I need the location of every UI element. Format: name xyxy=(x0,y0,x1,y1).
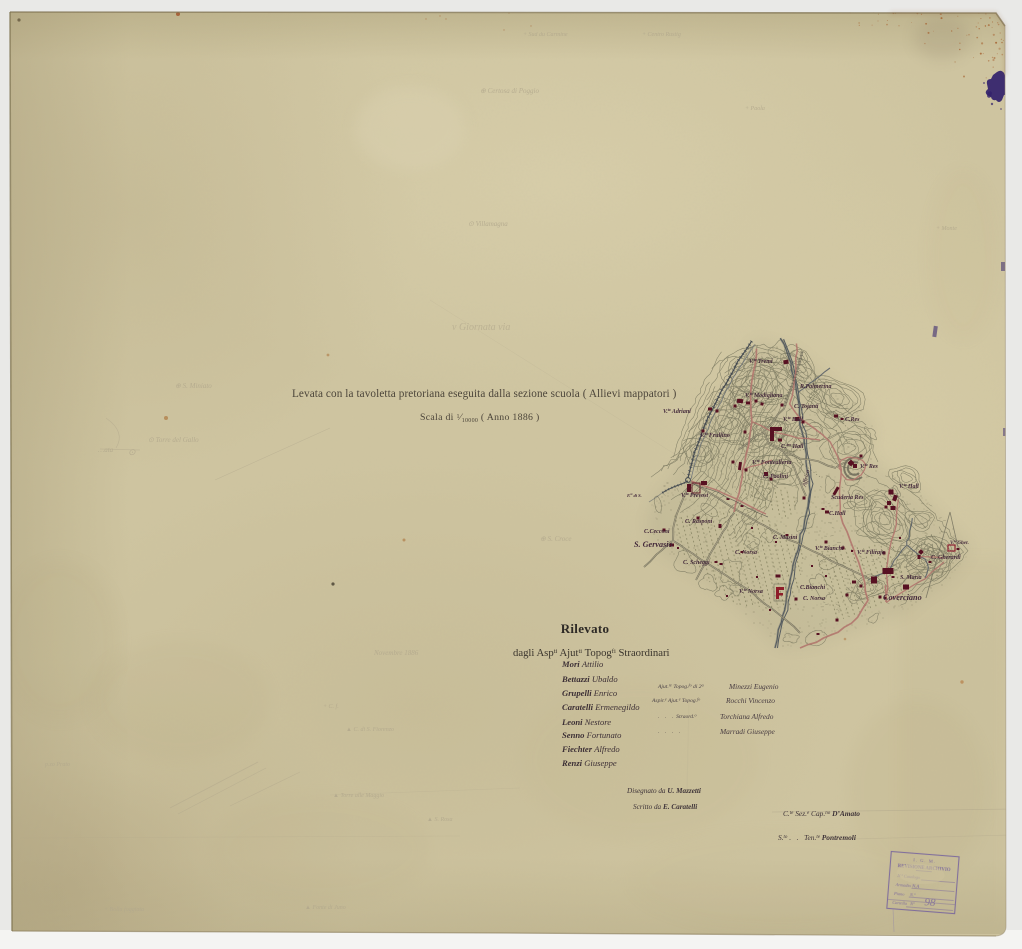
svg-text:C. Tojanti: C. Tojanti xyxy=(794,404,819,410)
svg-text:S. Maria: S. Maria xyxy=(900,575,922,581)
svg-text:⊕ Certosa di Poggio: ⊕ Certosa di Poggio xyxy=(480,87,539,95)
svg-text:C. Rasponi: C. Rasponi xyxy=(685,519,713,525)
svg-text:V.ta Hall: V.ta Hall xyxy=(899,483,919,490)
svg-text:Disegnato da U. Mazzetti: Disegnato da U. Mazzetti xyxy=(626,787,701,795)
svg-text:Rocchi Vincenzo: Rocchi Vincenzo xyxy=(725,696,775,705)
svg-text:C. Paolini: C. Paolini xyxy=(763,474,788,480)
svg-text:Novembre 1886: Novembre 1886 xyxy=(373,649,419,657)
svg-text:Bettazzi Ubaldo: Bettazzi Ubaldo xyxy=(561,674,618,684)
svg-text:C. Scheggi: C. Scheggi xyxy=(683,560,710,566)
svg-text:Aspir.e Ajut.e Topog.fo: Aspir.e Ajut.e Topog.fo xyxy=(651,697,700,705)
svg-text:Senno Fortunato: Senno Fortunato xyxy=(562,730,622,740)
svg-text:C.te Sez.e Cap.no D’Amato: C.te Sez.e Cap.no D’Amato xyxy=(783,809,860,818)
svg-text:S. Gervasio: S. Gervasio xyxy=(634,540,673,549)
svg-text:Mori Attilio: Mori Attilio xyxy=(561,659,604,669)
svg-text:+ Monte: + Monte xyxy=(936,226,957,232)
svg-text:C. Masini: C. Masini xyxy=(773,535,798,541)
svg-text:+ Bolla foggiata: + Bolla foggiata xyxy=(104,906,144,913)
svg-text:V.ta Bianchi: V.ta Bianchi xyxy=(815,545,844,552)
svg-text:Marradi Giuseppe: Marradi Giuseppe xyxy=(719,727,776,736)
svg-text:V.ta Tremi: V.ta Tremi xyxy=(749,358,773,365)
svg-text:p.zo Prato: p.zo Prato xyxy=(44,762,70,768)
svg-text:R.Palmerina: R.Palmerina xyxy=(799,384,832,390)
svg-text:Leoni Nestore: Leoni Nestore xyxy=(561,717,611,727)
svg-text:Scritto da E. Caratelli: Scritto da E. Caratelli xyxy=(633,803,697,811)
svg-text:▲ C. di S. Fiorenzo: ▲ C. di S. Fiorenzo xyxy=(346,727,394,733)
svg-text:Scuderia Res: Scuderia Res xyxy=(831,495,864,501)
svg-text:+ Paola: + Paola xyxy=(745,106,765,112)
svg-text:dagli Aspti Ajutti Topogfi Str: dagli Aspti Ajutti Topogfi Straordinari xyxy=(513,647,670,659)
svg-text:⊕ S. Croce: ⊕ S. Croce xyxy=(540,535,571,543)
svg-text:⊕ S. Miniato: ⊕ S. Miniato xyxy=(175,382,212,390)
svg-text:Caratelli Ermenegildo: Caratelli Ermenegildo xyxy=(562,702,640,712)
svg-text:⊙: ⊙ xyxy=(128,447,136,457)
svg-text:V.ta Prevost: V.ta Prevost xyxy=(681,492,708,499)
svg-text:+ Sud du Carmine: + Sud du Carmine xyxy=(523,32,568,38)
svg-text:Coverciano: Coverciano xyxy=(883,593,922,602)
svg-text:Renzi Giuseppe: Renzi Giuseppe xyxy=(561,758,617,768)
svg-text:+ Centro Rustig: + Centro Rustig xyxy=(642,32,681,38)
svg-text:⊙ Villamagna: ⊙ Villamagna xyxy=(468,220,508,228)
svg-text:C.Cecconi: C.Cecconi xyxy=(644,529,670,535)
svg-text:Torchiana Alfredo: Torchiana Alfredo xyxy=(720,712,774,721)
svg-text:▲ Fonte di Juno: ▲ Fonte di Juno xyxy=(305,905,346,911)
svg-text:⊙ Torre del Gallo: ⊙ Torre del Gallo xyxy=(148,436,199,444)
svg-text:. . . Straord.o: . . . Straord.o xyxy=(658,713,696,721)
svg-text:Rilevato: Rilevato xyxy=(561,621,610,636)
svg-text:F.te di S.: F.te di S. xyxy=(627,493,642,498)
svg-text:Levata con la tavoletta pretor: Levata con la tavoletta pretoriana esegu… xyxy=(292,388,677,400)
svg-text:Scala di 1⁄10000 ( Anno 1886 ): Scala di 1⁄10000 ( Anno 1886 ) xyxy=(420,412,540,424)
svg-text:C.Bianchi: C.Bianchi xyxy=(800,585,826,591)
svg-text:…ata: …ata xyxy=(98,446,114,454)
svg-text:V.ta Gher.: V.ta Gher. xyxy=(950,539,969,546)
svg-text:C. Norsa: C. Norsa xyxy=(735,550,757,556)
svg-text:V.ta Norsa: V.ta Norsa xyxy=(739,588,763,595)
svg-text:Ajut.re Topog.fo di 2a: Ajut.re Topog.fo di 2a xyxy=(657,683,704,691)
svg-text:V.ta Res: V.ta Res xyxy=(860,463,878,470)
svg-text:ν Giornata via: ν Giornata via xyxy=(452,322,510,333)
svg-text:V.ta Hall: V.ta Hall xyxy=(783,416,803,423)
svg-text:C. Gherardi: C. Gherardi xyxy=(931,555,961,561)
svg-text:. . . .: . . . . xyxy=(658,729,680,735)
svg-text:V.ta Adriani: V.ta Adriani xyxy=(663,408,691,415)
svg-text:C.mo Hall: C.mo Hall xyxy=(781,443,804,450)
svg-text:C.Res: C.Res xyxy=(845,417,860,423)
svg-text:C. Norsa: C. Norsa xyxy=(803,596,825,602)
svg-text:Minezzi Eugenio: Minezzi Eugenio xyxy=(728,682,779,691)
svg-text:+ C. f.: + C. f. xyxy=(323,703,339,710)
svg-text:Grupelli Enrico: Grupelli Enrico xyxy=(562,688,618,698)
svg-text:Fiechter Alfredo: Fiechter Alfredo xyxy=(561,744,620,754)
svg-text:V.ta Filiraja: V.ta Filiraja xyxy=(857,549,885,556)
svg-text:C.Hall: C.Hall xyxy=(829,511,846,517)
svg-text:V.ta Frullino: V.ta Frullino xyxy=(700,432,730,439)
svg-text:▲ S. Rosa: ▲ S. Rosa xyxy=(427,817,452,823)
